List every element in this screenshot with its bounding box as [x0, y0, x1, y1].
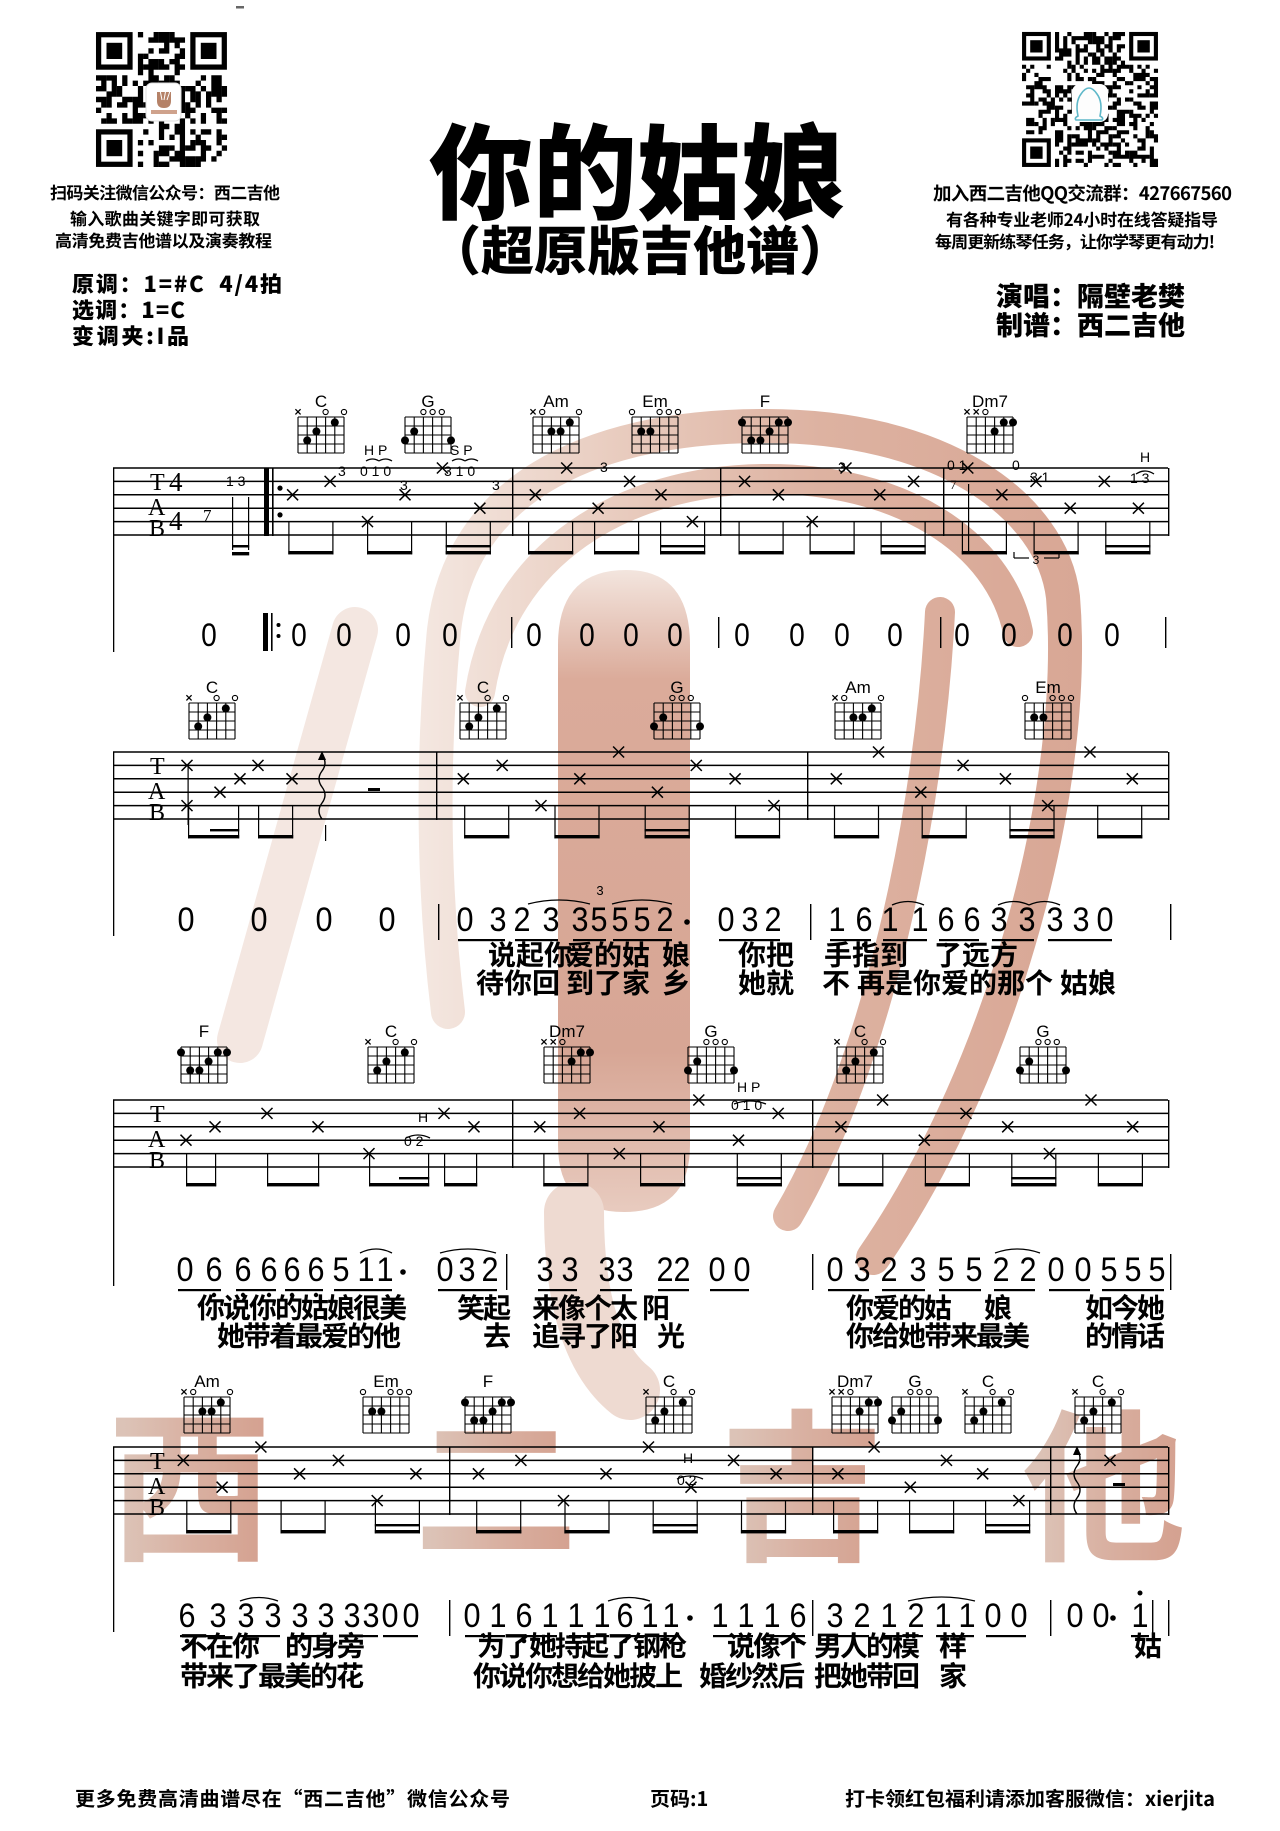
- svg-text:3: 3: [854, 1251, 871, 1289]
- svg-text:0: 0: [954, 618, 970, 653]
- svg-text:6: 6: [206, 1251, 223, 1289]
- svg-text:6: 6: [234, 1251, 251, 1289]
- svg-text:T: T: [150, 1102, 165, 1128]
- svg-text:1: 1: [567, 1597, 584, 1635]
- svg-text:0: 0: [734, 618, 750, 653]
- svg-text:H: H: [418, 1109, 428, 1125]
- svg-text:3: 3: [343, 1597, 360, 1635]
- svg-text:G: G: [670, 678, 683, 697]
- svg-text:3: 3: [600, 459, 608, 475]
- svg-text:5: 5: [1100, 1251, 1117, 1289]
- svg-text:3: 3: [827, 1597, 844, 1635]
- svg-text:H P: H P: [364, 442, 387, 458]
- svg-text:H: H: [683, 1450, 693, 1466]
- svg-text:3: 3: [1018, 901, 1035, 939]
- svg-text:0: 0: [381, 1597, 398, 1635]
- svg-text:1: 1: [541, 1597, 558, 1635]
- svg-text:C: C: [315, 392, 327, 411]
- svg-text:F: F: [760, 392, 770, 411]
- svg-text:1: 1: [935, 1597, 952, 1635]
- svg-text:3: 3: [990, 901, 1007, 939]
- svg-text:5: 5: [1125, 1251, 1142, 1289]
- svg-text:0: 0: [457, 901, 474, 939]
- svg-text:3 1: 3 1: [1030, 469, 1050, 485]
- svg-text:0: 0: [178, 901, 195, 939]
- svg-text:0: 0: [667, 618, 683, 653]
- svg-text:Em: Em: [373, 1372, 399, 1391]
- svg-text:1: 1: [489, 1597, 506, 1635]
- svg-text:0: 0: [395, 618, 411, 653]
- svg-text:0: 0: [709, 1251, 726, 1289]
- svg-text:2: 2: [992, 1251, 1009, 1289]
- svg-text:2: 2: [908, 1597, 925, 1635]
- svg-text:1 3: 1 3: [226, 473, 246, 489]
- svg-text:0: 0: [984, 1597, 1001, 1635]
- svg-text:0: 0: [403, 1597, 420, 1635]
- svg-text:C: C: [385, 1022, 397, 1041]
- svg-text:0: 0: [1066, 1597, 1083, 1635]
- svg-text:4: 4: [169, 506, 183, 536]
- svg-text:1: 1: [764, 1597, 781, 1635]
- svg-text:0: 0: [1097, 901, 1114, 939]
- svg-text:Am: Am: [543, 392, 569, 411]
- svg-text:6: 6: [963, 901, 980, 939]
- svg-text:0: 0: [623, 618, 639, 653]
- svg-text:0 2: 0 2: [677, 1472, 697, 1488]
- svg-text:5: 5: [965, 1251, 982, 1289]
- svg-text:0 1 0: 0 1 0: [731, 1097, 762, 1113]
- svg-text:Am: Am: [845, 678, 871, 697]
- svg-text:1: 1: [711, 1597, 728, 1635]
- svg-text:0: 0: [463, 1597, 480, 1635]
- svg-text:B: B: [149, 1148, 165, 1174]
- svg-text:3: 3: [909, 1251, 926, 1289]
- svg-text:0: 0: [201, 618, 217, 653]
- svg-text:2: 2: [854, 1597, 871, 1635]
- svg-text:C: C: [477, 678, 489, 697]
- svg-text:6: 6: [937, 901, 954, 939]
- svg-text:6: 6: [283, 1251, 300, 1289]
- svg-text:0: 0: [315, 901, 332, 939]
- svg-text:3: 3: [1033, 553, 1040, 567]
- svg-text:3: 3: [264, 1597, 281, 1635]
- svg-text:0: 0: [1010, 1597, 1027, 1635]
- svg-text:Dm7: Dm7: [972, 392, 1008, 411]
- svg-text:7: 7: [950, 477, 957, 492]
- svg-text:6: 6: [616, 1597, 633, 1635]
- svg-text:3: 3: [492, 477, 500, 493]
- svg-text:3: 3: [598, 1251, 615, 1289]
- svg-text:T: T: [150, 1449, 165, 1475]
- svg-text:5: 5: [937, 1251, 954, 1289]
- svg-text:3: 3: [571, 901, 588, 939]
- svg-text:6: 6: [515, 1597, 532, 1635]
- svg-text:2: 2: [513, 901, 530, 939]
- svg-text:B: B: [149, 1495, 165, 1521]
- svg-text:5: 5: [633, 901, 650, 939]
- svg-text:5: 5: [333, 1251, 350, 1289]
- svg-text:Em: Em: [1035, 678, 1061, 697]
- svg-text:3: 3: [561, 1251, 578, 1289]
- svg-text:3: 3: [317, 1597, 334, 1635]
- svg-text:G: G: [421, 392, 434, 411]
- svg-text:0: 0: [1074, 1251, 1091, 1289]
- svg-text:0 1 0: 0 1 0: [360, 463, 391, 479]
- svg-text:C: C: [663, 1372, 675, 1391]
- svg-text:0: 0: [526, 618, 542, 653]
- svg-text:B: B: [149, 516, 165, 542]
- svg-text:0 1: 0 1: [947, 457, 967, 473]
- svg-text:1: 1: [358, 1251, 375, 1289]
- svg-text:0: 0: [579, 618, 595, 653]
- svg-text:4: 4: [169, 467, 183, 497]
- svg-text:2: 2: [765, 901, 782, 939]
- svg-text:1: 1: [1132, 1597, 1149, 1635]
- svg-text:2: 2: [657, 901, 674, 939]
- svg-text:S P: S P: [450, 442, 473, 458]
- svg-text:C: C: [854, 1022, 866, 1041]
- svg-text:2: 2: [657, 1251, 674, 1289]
- svg-text:2: 2: [881, 1251, 898, 1289]
- svg-text:Dm7: Dm7: [837, 1372, 873, 1391]
- svg-text:0: 0: [442, 618, 458, 653]
- svg-text:C: C: [982, 1372, 994, 1391]
- svg-text:G: G: [1036, 1022, 1049, 1041]
- svg-text:0: 0: [834, 618, 850, 653]
- svg-text:5: 5: [612, 901, 629, 939]
- svg-text:3: 3: [537, 1251, 554, 1289]
- svg-text:3: 3: [209, 1597, 226, 1635]
- svg-text:F: F: [483, 1372, 493, 1391]
- svg-text:6: 6: [855, 901, 872, 939]
- svg-text:0: 0: [1012, 457, 1020, 473]
- svg-text:Dm7: Dm7: [549, 1022, 585, 1041]
- svg-text:T: T: [150, 754, 165, 780]
- svg-text:6: 6: [790, 1597, 807, 1635]
- svg-text:3: 3: [1072, 901, 1089, 939]
- svg-text:H P: H P: [737, 1079, 760, 1095]
- svg-text:3: 3: [291, 1597, 308, 1635]
- svg-text:0: 0: [1047, 1251, 1064, 1289]
- svg-text:3: 3: [1046, 901, 1063, 939]
- svg-text:3 1 0: 3 1 0: [444, 463, 475, 479]
- svg-text:3: 3: [542, 901, 559, 939]
- svg-text:1: 1: [594, 1597, 611, 1635]
- svg-text:0: 0: [291, 618, 307, 653]
- svg-text:0: 0: [1057, 618, 1073, 653]
- svg-text:6: 6: [179, 1597, 196, 1635]
- svg-text:C: C: [206, 678, 218, 697]
- svg-text:3: 3: [362, 1597, 379, 1635]
- svg-text:1: 1: [911, 901, 928, 939]
- svg-text:T: T: [150, 470, 165, 496]
- svg-text:1: 1: [958, 1597, 975, 1635]
- svg-text:0: 0: [1092, 1597, 1109, 1635]
- svg-text:1: 1: [738, 1597, 755, 1635]
- svg-text:0: 0: [733, 1251, 750, 1289]
- svg-text:F: F: [199, 1022, 209, 1041]
- svg-text:0: 0: [1104, 618, 1120, 653]
- svg-text:5: 5: [1149, 1251, 1166, 1289]
- svg-text:3: 3: [596, 883, 603, 898]
- svg-text:0: 0: [251, 901, 268, 939]
- svg-text:0: 0: [177, 1251, 194, 1289]
- svg-text:7: 7: [203, 506, 212, 525]
- svg-text:2: 2: [1019, 1251, 1036, 1289]
- svg-text:6: 6: [307, 1251, 324, 1289]
- svg-text:0: 0: [887, 618, 903, 653]
- svg-text:0: 0: [827, 1251, 844, 1289]
- svg-text:1: 1: [641, 1597, 658, 1635]
- svg-text:3: 3: [400, 477, 408, 493]
- svg-text:3: 3: [459, 1251, 476, 1289]
- svg-text:0: 0: [436, 1251, 453, 1289]
- svg-text:1: 1: [663, 1597, 680, 1635]
- svg-text:5: 5: [591, 901, 608, 939]
- svg-text:0: 0: [378, 901, 395, 939]
- svg-text:2: 2: [674, 1251, 691, 1289]
- svg-text:B: B: [149, 800, 165, 826]
- svg-text:3: 3: [741, 901, 758, 939]
- svg-text:0: 0: [1001, 618, 1017, 653]
- svg-text:0: 0: [789, 618, 805, 653]
- svg-text:3: 3: [237, 1597, 254, 1635]
- svg-text:G: G: [704, 1022, 717, 1041]
- svg-text:1: 1: [828, 901, 845, 939]
- svg-text:2: 2: [481, 1251, 498, 1289]
- svg-text:H: H: [1140, 449, 1150, 465]
- svg-text:0: 0: [336, 618, 352, 653]
- svg-text:Am: Am: [194, 1372, 220, 1391]
- svg-text:C: C: [1092, 1372, 1104, 1391]
- svg-text:3: 3: [489, 901, 506, 939]
- svg-text:Em: Em: [642, 392, 668, 411]
- svg-text:0: 0: [718, 901, 735, 939]
- svg-text:3: 3: [838, 459, 846, 475]
- svg-text:6: 6: [261, 1251, 278, 1289]
- svg-text:1: 1: [377, 1251, 394, 1289]
- svg-text:1: 1: [881, 1597, 898, 1635]
- svg-text:1: 1: [882, 901, 899, 939]
- svg-text:G: G: [908, 1372, 921, 1391]
- svg-text:3: 3: [616, 1251, 633, 1289]
- svg-text:3: 3: [338, 463, 346, 479]
